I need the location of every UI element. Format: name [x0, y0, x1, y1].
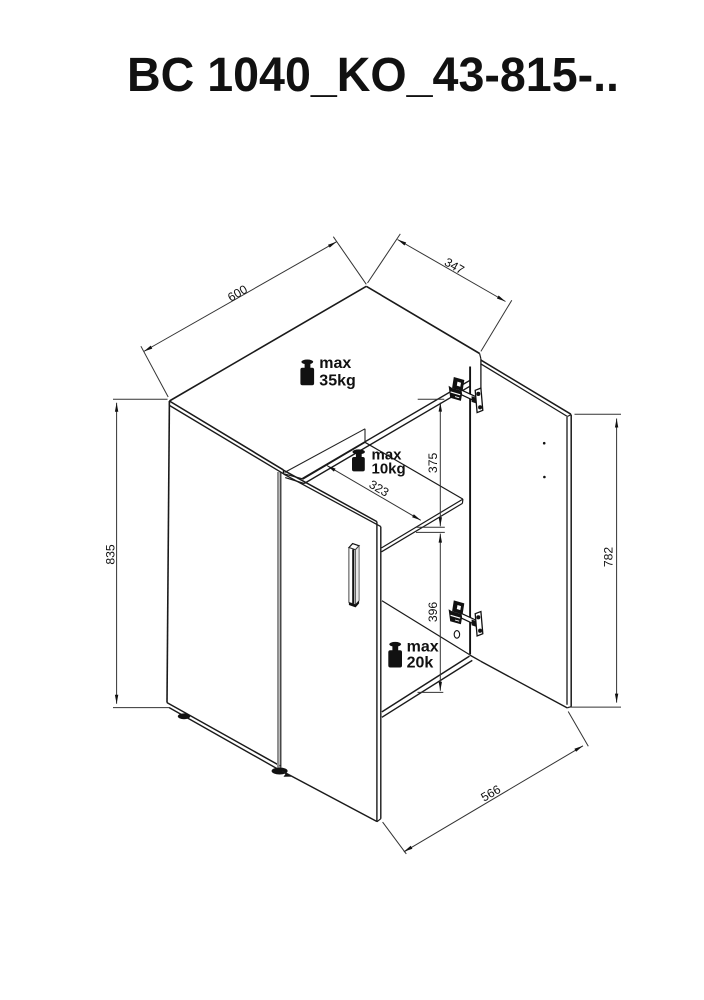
svg-text:375: 375 — [426, 453, 440, 474]
svg-text:max: max — [407, 638, 439, 655]
svg-text:35kg: 35kg — [319, 372, 355, 389]
svg-text:10kg: 10kg — [372, 460, 406, 477]
svg-text:20k: 20k — [407, 654, 434, 671]
svg-text:782: 782 — [602, 547, 616, 568]
svg-text:BC 1040_KO_43-815-..: BC 1040_KO_43-815-.. — [127, 49, 619, 102]
svg-text:max: max — [319, 355, 351, 372]
svg-text:396: 396 — [426, 602, 440, 623]
svg-text:835: 835 — [104, 544, 118, 565]
